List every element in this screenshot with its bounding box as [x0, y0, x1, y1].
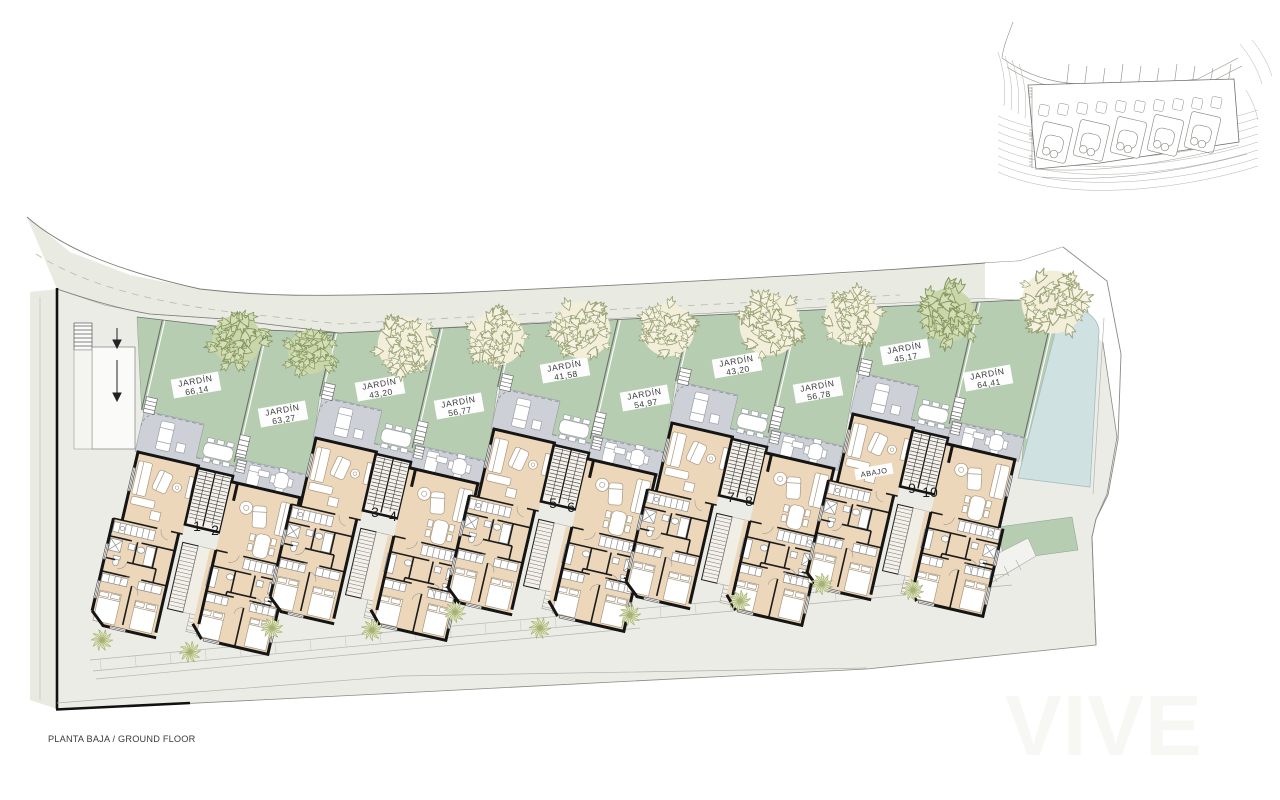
svg-text:PLANTA BAJA / GROUND FLOOR: PLANTA BAJA / GROUND FLOOR [48, 734, 196, 744]
svg-text:1: 1 [193, 518, 201, 534]
svg-text:6: 6 [567, 499, 575, 515]
svg-text:3: 3 [371, 504, 379, 520]
svg-text:4: 4 [389, 508, 397, 524]
svg-text:5: 5 [549, 495, 557, 511]
svg-text:7: 7 [727, 489, 735, 505]
svg-text:8: 8 [745, 493, 753, 509]
svg-text:VIVE: VIVE [1005, 679, 1203, 774]
svg-text:2: 2 [211, 522, 219, 538]
svg-text:9: 9 [908, 480, 916, 496]
svg-text:10: 10 [922, 484, 938, 500]
